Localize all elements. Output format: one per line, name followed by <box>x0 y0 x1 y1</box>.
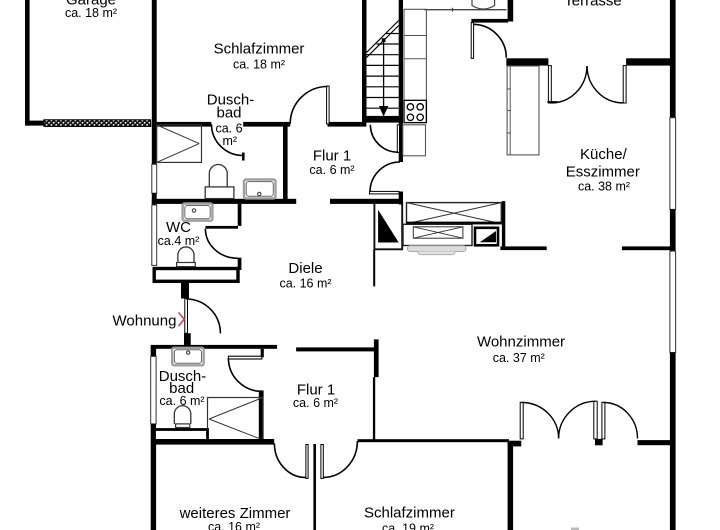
svg-text:Wohnzimmer: Wohnzimmer <box>477 333 565 350</box>
svg-text:Flur 1: Flur 1 <box>313 147 351 164</box>
svg-text:ca. 6 m²: ca. 6 m² <box>159 394 204 408</box>
svg-text:ca.4 m²: ca.4 m² <box>158 234 200 248</box>
svg-text:ca. 37 m²: ca. 37 m² <box>493 351 545 365</box>
svg-text:ca. 18 m²: ca. 18 m² <box>233 58 285 72</box>
svg-text:Esszimmer: Esszimmer <box>566 164 640 181</box>
svg-text:Schlafzimmer: Schlafzimmer <box>364 505 455 522</box>
svg-text:ca. 6 m²: ca. 6 m² <box>309 163 354 177</box>
svg-text:ca. 6 m²: ca. 6 m² <box>293 396 338 410</box>
svg-text:Schlafzimmer: Schlafzimmer <box>214 41 305 58</box>
svg-text:Terrasse: Terrasse <box>564 0 622 10</box>
svg-text:ca. 38 m²: ca. 38 m² <box>578 180 630 194</box>
svg-text:Diele: Diele <box>288 260 322 277</box>
svg-text:m²: m² <box>223 134 238 148</box>
svg-text:Wohnung: Wohnung <box>113 312 177 329</box>
svg-text:ca. 16 m²: ca. 16 m² <box>279 276 331 290</box>
svg-text:ca. 18 m²: ca. 18 m² <box>65 6 117 20</box>
svg-text:ca. 16 m²: ca. 16 m² <box>208 520 260 530</box>
svg-text:bad: bad <box>216 105 241 122</box>
svg-text:ca. 19 m²: ca. 19 m² <box>382 522 434 530</box>
svg-text:Küche/: Küche/ <box>580 146 628 163</box>
